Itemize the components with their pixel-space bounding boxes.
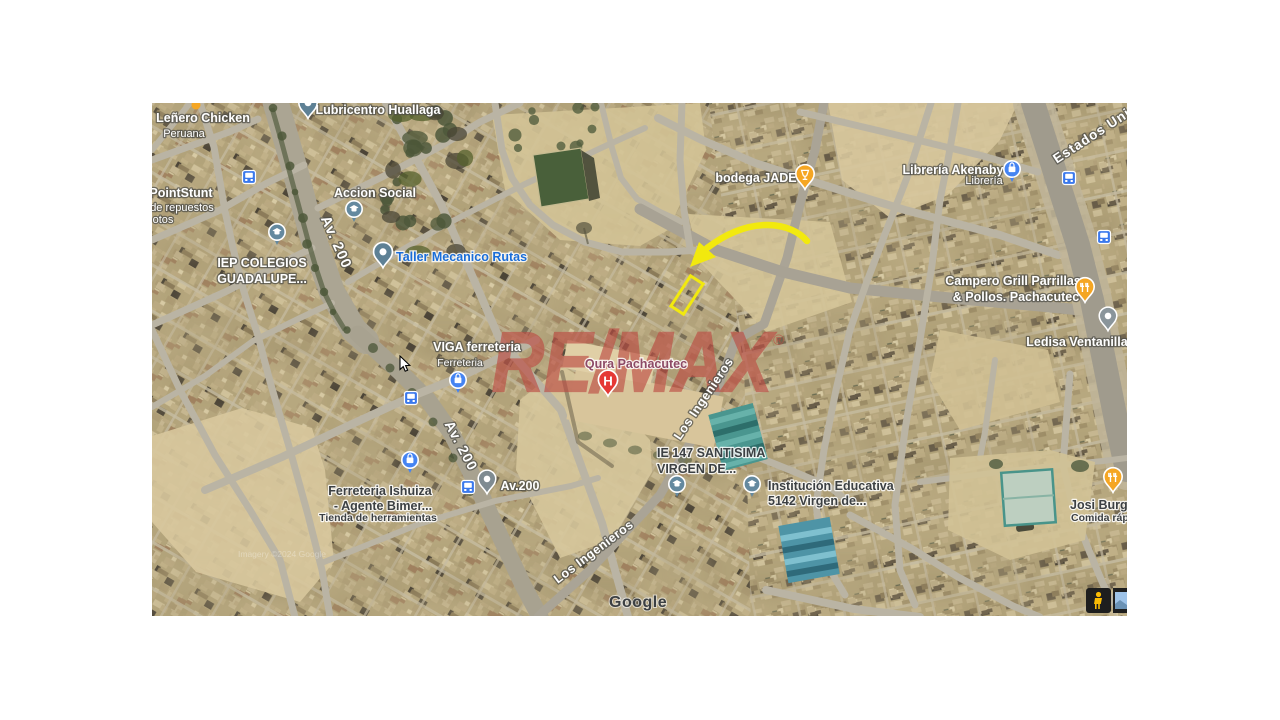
svg-text:& Pollos. Pachacutec: & Pollos. Pachacutec: [953, 290, 1079, 304]
svg-text:VIGA ferreteria: VIGA ferreteria: [433, 340, 522, 354]
svg-text:Campero Grill Parrillas: Campero Grill Parrillas: [945, 274, 1081, 288]
svg-text:VIRGEN DE...: VIRGEN DE...: [657, 462, 736, 476]
svg-text:Librería: Librería: [965, 175, 1003, 187]
svg-text:5142 Virgen de...: 5142 Virgen de...: [768, 494, 866, 508]
svg-text:Accion Social: Accion Social: [334, 186, 416, 200]
svg-text:- Agente Bimer...: - Agente Bimer...: [334, 499, 432, 513]
svg-text:bodega JADE: bodega JADE: [715, 171, 796, 185]
svg-text:IE 147 SANTISIMA: IE 147 SANTISIMA: [657, 446, 765, 460]
svg-text:IEP COLEGIOS: IEP COLEGIOS: [217, 256, 306, 270]
svg-text:Leñero Chicken: Leñero Chicken: [156, 111, 250, 125]
svg-text:Qura Pachacutec: Qura Pachacutec: [585, 357, 687, 371]
svg-text:H: H: [603, 373, 613, 388]
svg-text:Taller Mecanico Rutas: Taller Mecanico Rutas: [396, 250, 527, 264]
svg-text:Ferreteria Ishuiza: Ferreteria Ishuiza: [328, 484, 433, 498]
svg-text:Av.200: Av.200: [501, 479, 540, 493]
svg-text:Google: Google: [609, 594, 667, 611]
svg-text:de repuestos: de repuestos: [150, 202, 214, 214]
svg-text:Tienda de herramientas: Tienda de herramientas: [319, 512, 437, 524]
svg-text:Imagery ©2024 Google: Imagery ©2024 Google: [238, 549, 326, 559]
svg-text:Peruana: Peruana: [163, 128, 205, 140]
svg-text:GUADALUPE...: GUADALUPE...: [217, 272, 307, 286]
svg-text:otos: otos: [153, 214, 174, 226]
svg-text:Ledisa Ventanilla: Ledisa Ventanilla: [1026, 335, 1128, 349]
svg-text:Josi Burge: Josi Burge: [1070, 498, 1135, 512]
svg-text:PointStunt: PointStunt: [149, 186, 213, 200]
svg-text:Institución Educativa: Institución Educativa: [768, 479, 895, 493]
svg-text:Ferreteria: Ferreteria: [437, 357, 483, 369]
svg-text:®: ®: [773, 332, 784, 349]
svg-text:Lubricentro Huallaga: Lubricentro Huallaga: [315, 103, 441, 117]
